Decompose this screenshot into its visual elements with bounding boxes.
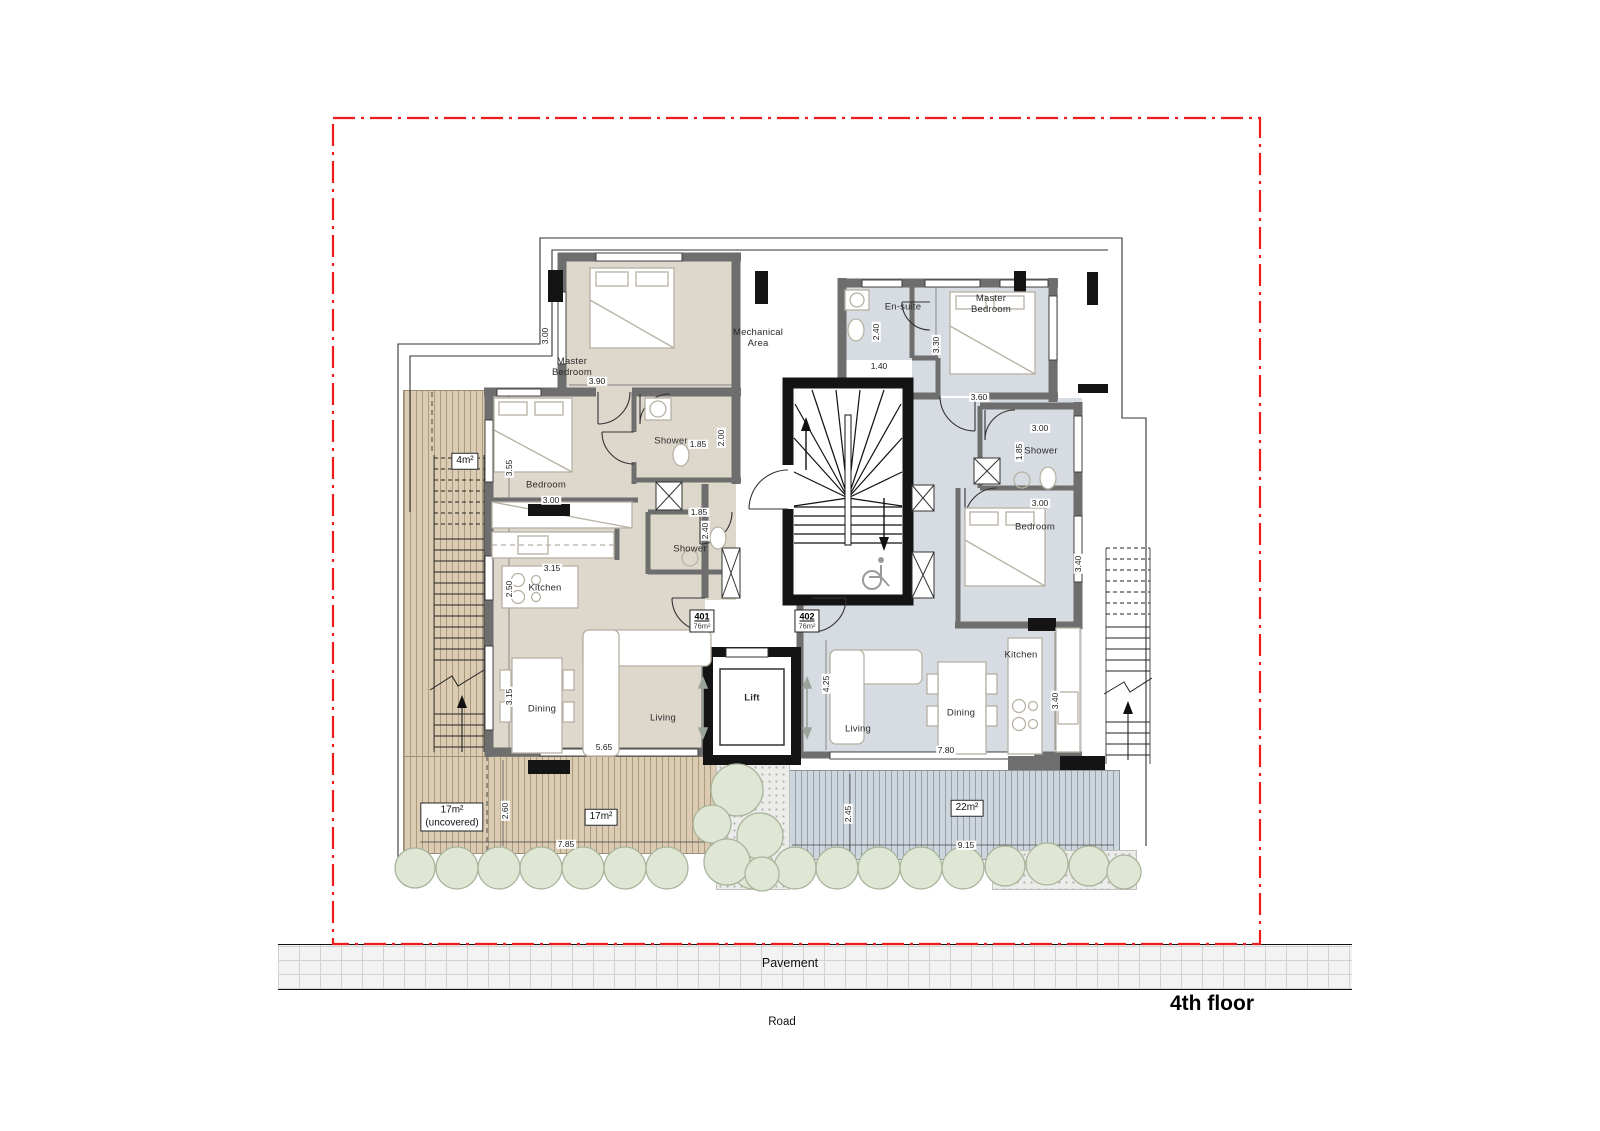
pavement-label: Pavement bbox=[762, 956, 818, 970]
dimension-label: 1.85 bbox=[688, 440, 708, 449]
dimension-label: 7.80 bbox=[936, 746, 956, 755]
area-badge: 17m² bbox=[585, 809, 618, 826]
dimension-label: 4.25 bbox=[822, 674, 831, 694]
road-label: Road bbox=[768, 1016, 796, 1028]
unit-number: 401 bbox=[693, 612, 710, 622]
unit-area: 76m² bbox=[798, 622, 815, 631]
unit-badge-402: 402 76m² bbox=[794, 610, 819, 633]
room-label: Master Bedroom bbox=[552, 357, 592, 379]
room-label: Dining bbox=[528, 705, 556, 716]
dimension-label: 3.15 bbox=[505, 687, 514, 707]
dimension-label: 3.30 bbox=[932, 335, 941, 355]
room-label: Kitchen bbox=[1004, 651, 1037, 662]
dimension-label: 3.00 bbox=[541, 496, 561, 505]
lift-label: Lift bbox=[744, 694, 760, 705]
room-label: Shower bbox=[673, 545, 706, 556]
dimension-label: 3.40 bbox=[1074, 554, 1083, 574]
dimension-label: 2.40 bbox=[872, 322, 881, 342]
dimension-label: 5.65 bbox=[594, 743, 614, 752]
area-badge: 4m² bbox=[451, 453, 478, 470]
dimension-label: 2.40 bbox=[701, 521, 710, 541]
dimension-label: 3.55 bbox=[505, 458, 514, 478]
mechanical-area-label: Mechanical Area bbox=[733, 328, 783, 350]
dimension-label: 7.85 bbox=[556, 840, 576, 849]
dimension-label: 3.15 bbox=[542, 564, 562, 573]
room-label: Bedroom bbox=[1015, 523, 1055, 534]
room-label: Shower bbox=[654, 437, 687, 448]
room-label: Bedroom bbox=[526, 481, 566, 492]
dimension-label: 2.60 bbox=[501, 801, 510, 821]
dimension-label: 3.40 bbox=[1051, 691, 1060, 711]
dimension-label: 2.00 bbox=[717, 428, 726, 448]
room-label: Kitchen bbox=[528, 584, 561, 595]
room-label: En-suite bbox=[885, 303, 921, 314]
dimension-label: 3.00 bbox=[1030, 424, 1050, 433]
dimension-label: 2.45 bbox=[844, 804, 853, 824]
dimension-label: 3.00 bbox=[1030, 499, 1050, 508]
dimension-label: 1.40 bbox=[869, 362, 889, 371]
room-label: Master Bedroom bbox=[971, 294, 1011, 316]
dimension-label: 3.60 bbox=[969, 393, 989, 402]
dimension-label: 3.90 bbox=[587, 377, 607, 386]
unit-area: 76m² bbox=[693, 622, 710, 631]
page-title: 4th floor bbox=[1170, 992, 1254, 1016]
unit-badge-401: 401 76m² bbox=[689, 610, 714, 633]
dimension-label: 9.15 bbox=[956, 841, 976, 850]
room-label: Living bbox=[650, 714, 676, 725]
dimension-label: 2.50 bbox=[505, 579, 514, 599]
floor-plan-canvas: Mechanical Area Lift 401 76m² 402 76m² P… bbox=[0, 0, 1600, 1131]
dimension-label: 1.85 bbox=[1015, 442, 1024, 462]
room-label: Living bbox=[845, 725, 871, 736]
dimension-label: 1.85 bbox=[689, 508, 709, 517]
area-badge: 17m² (uncovered) bbox=[420, 803, 483, 832]
labels-layer: Mechanical Area Lift 401 76m² 402 76m² P… bbox=[0, 0, 1600, 1131]
room-label: Dining bbox=[947, 709, 975, 720]
room-label: Shower bbox=[1024, 447, 1057, 458]
area-badge: 22m² bbox=[951, 800, 984, 817]
unit-number: 402 bbox=[798, 612, 815, 622]
dimension-label: 3.00 bbox=[541, 326, 550, 346]
